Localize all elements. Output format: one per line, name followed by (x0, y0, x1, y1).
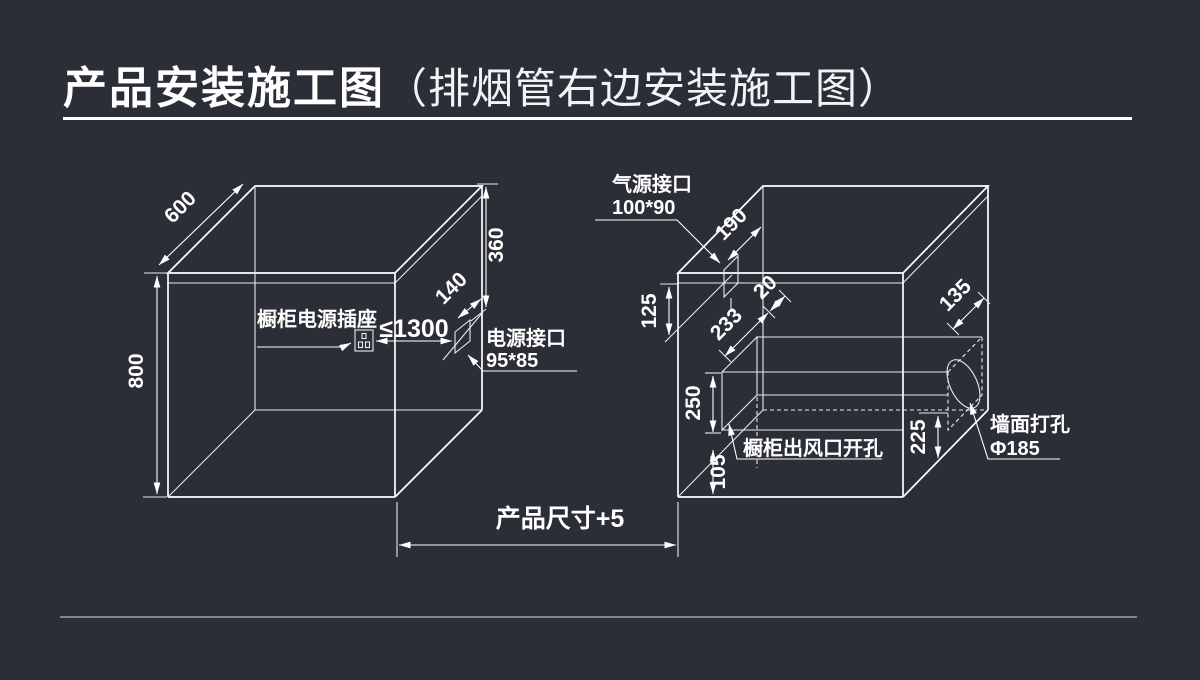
cabinet-socket: 橱柜电源插座 ≤1300 (257, 307, 452, 351)
duct-opening-left (722, 337, 757, 430)
dim-top-height-360: 360 (471, 184, 508, 321)
dimension-text: 233 (706, 304, 747, 345)
dimension-text: 225 (907, 419, 930, 454)
dimension-text: 产品尺寸+5 (496, 505, 625, 533)
dim-right-height-225: 225 (907, 413, 948, 458)
dim-product-size: 产品尺寸+5 (397, 502, 678, 557)
label-text: 电源接口 (486, 327, 566, 350)
dimension-text: 20 (749, 271, 782, 304)
socket-icon-pin (359, 342, 363, 348)
dimension-text: 135 (935, 275, 976, 316)
label-text: 墙面打孔 (990, 412, 1070, 436)
dim-duct-position: 233 20 (706, 271, 791, 362)
dim-wall-offset-135: 135 (935, 275, 990, 335)
extension-line (443, 312, 483, 360)
dimension-text: ≤1300 (379, 315, 448, 343)
dim-height-800: 800 (125, 273, 170, 497)
socket-icon-pin (366, 342, 370, 348)
label-text: 100*90 (612, 197, 675, 219)
wall-hole-circle (940, 355, 986, 414)
leader-line (595, 220, 720, 263)
dim-depth-600: 600 (159, 184, 243, 265)
cabinet-edge (168, 410, 255, 497)
extension-line (471, 309, 486, 321)
leader-line (257, 343, 351, 347)
cabinet-top-band (168, 196, 482, 283)
dimension-text: 360 (485, 227, 508, 262)
dimension-text: 105 (707, 454, 730, 489)
label-text: 橱柜出风口开孔 (743, 436, 883, 460)
dimension-text: 800 (125, 353, 148, 388)
socket-label: 橱柜电源插座 (257, 307, 377, 331)
diagram-canvas: 600 800 360 140 橱柜电源插 (0, 0, 1200, 680)
cabinet-edge (395, 410, 482, 497)
dimension-text: 125 (638, 293, 661, 328)
dimension-text: 140 (431, 268, 472, 309)
dimension-text: 250 (682, 385, 705, 420)
dimension-text: 190 (711, 204, 752, 245)
dimension-text: 600 (160, 187, 201, 228)
label-text: 95*85 (486, 350, 538, 372)
wall-hole-label: 墙面打孔 Φ185 (970, 403, 1070, 460)
installation-diagram-page: 产品安装施工图（排烟管右边安装施工图） 600 (0, 0, 1200, 680)
label-text: Φ185 (990, 438, 1040, 460)
duct-opening-right (948, 337, 982, 430)
dim-opening-vertical: 250 105 (682, 373, 730, 494)
power-port: 140 (431, 268, 483, 360)
power-port-label: 电源接口 95*85 (468, 327, 577, 372)
socket-icon-pin (362, 334, 366, 339)
dimension-line (770, 296, 785, 311)
label-text: 气源接口 (611, 172, 692, 196)
duct-opening-label: 橱柜出风口开孔 (729, 424, 883, 460)
cabinet-top-face (168, 186, 482, 273)
